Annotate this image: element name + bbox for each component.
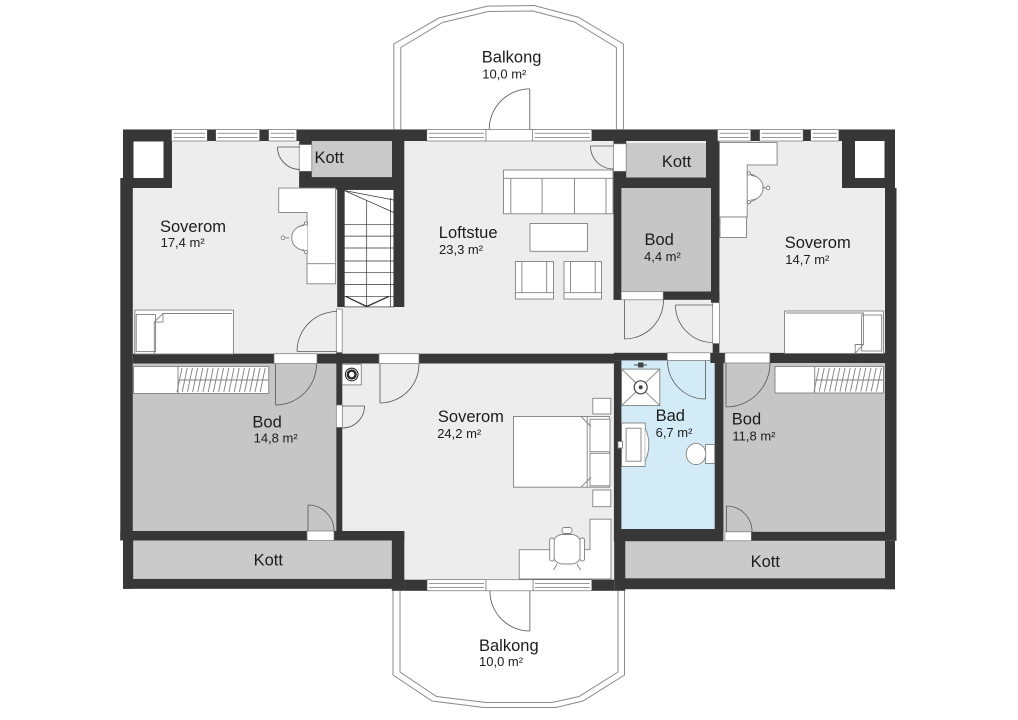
svg-text:Kott: Kott	[254, 552, 284, 570]
svg-text:Bod: Bod	[252, 413, 281, 431]
svg-text:Kott: Kott	[315, 149, 345, 167]
svg-text:Kott: Kott	[662, 153, 692, 171]
svg-text:Soverom: Soverom	[438, 408, 504, 426]
svg-text:23,3 m²: 23,3 m²	[439, 242, 484, 257]
svg-text:14,7 m²: 14,7 m²	[785, 252, 830, 267]
svg-text:10,0 m²: 10,0 m²	[479, 654, 524, 669]
svg-text:Soverom: Soverom	[785, 234, 851, 252]
svg-text:11,8 m²: 11,8 m²	[732, 428, 776, 443]
svg-text:10,0 m²: 10,0 m²	[482, 66, 527, 81]
svg-text:Bad: Bad	[656, 407, 685, 425]
svg-text:4,4 m²: 4,4 m²	[644, 249, 682, 264]
svg-text:Bod: Bod	[732, 411, 761, 429]
svg-text:Loftstue: Loftstue	[439, 224, 498, 242]
svg-text:Balkong: Balkong	[482, 49, 542, 67]
svg-text:14,8 m²: 14,8 m²	[254, 431, 299, 446]
svg-text:24,2 m²: 24,2 m²	[437, 426, 482, 441]
svg-text:6,7 m²: 6,7 m²	[656, 425, 694, 440]
svg-text:Balkong: Balkong	[479, 637, 539, 655]
svg-text:Bod: Bod	[645, 231, 674, 249]
svg-text:Soverom: Soverom	[160, 218, 226, 236]
svg-text:Kott: Kott	[751, 553, 781, 571]
svg-text:17,4 m²: 17,4 m²	[161, 235, 206, 250]
